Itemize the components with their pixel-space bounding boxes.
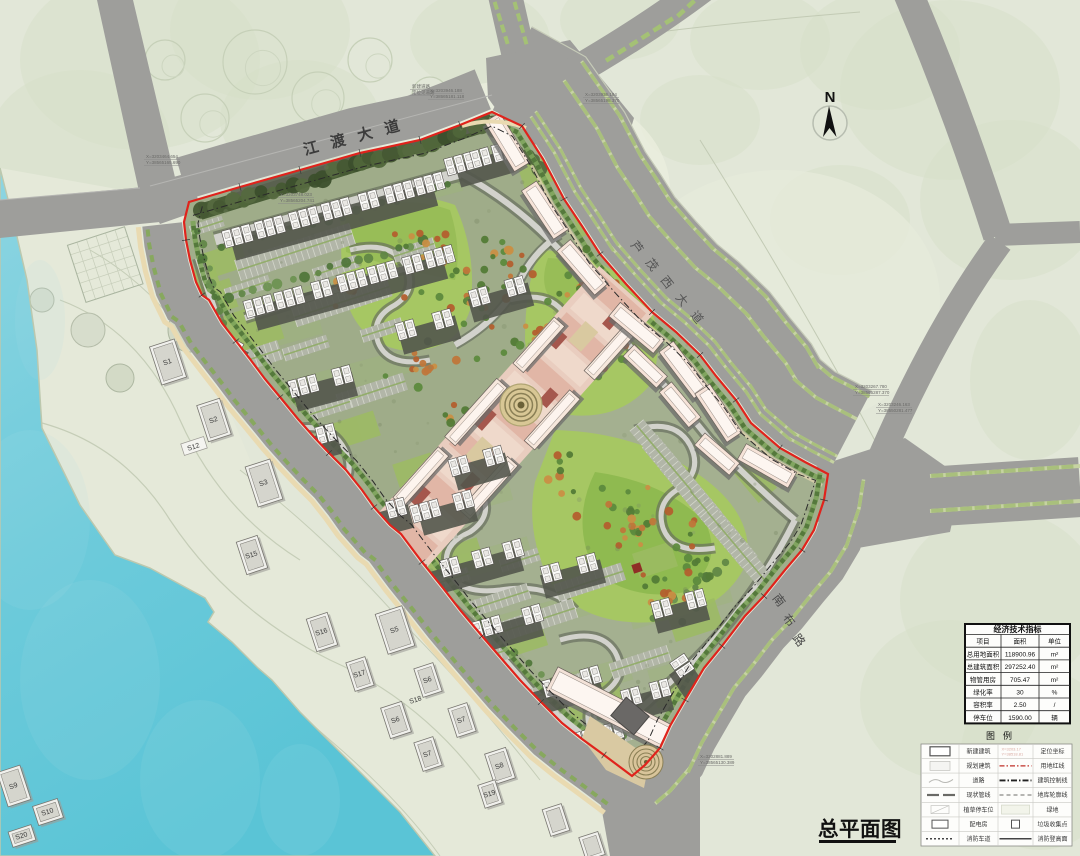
svg-text:m²: m² <box>1051 651 1059 658</box>
svg-text:30: 30 <box>1016 690 1024 697</box>
svg-text:%: % <box>1052 690 1058 697</box>
svg-text:N: N <box>825 89 836 106</box>
svg-text:绿地: 绿地 <box>1046 806 1058 814</box>
svg-text:X=3203748.023: X=3203748.023 <box>280 192 312 197</box>
svg-text:总用地面积: 总用地面积 <box>967 649 1000 658</box>
svg-text:例: 例 <box>1003 730 1012 741</box>
svg-text:消防车道: 消防车道 <box>966 835 990 843</box>
svg-text:297252.40: 297252.40 <box>1005 664 1036 671</box>
svg-text:道路: 道路 <box>972 777 984 785</box>
svg-text:Y=38518.81: Y=38518.81 <box>1002 751 1024 756</box>
svg-text:新建建筑: 新建建筑 <box>966 748 990 756</box>
svg-text:面积: 面积 <box>1014 637 1028 646</box>
svg-text:单位: 单位 <box>1048 637 1062 646</box>
svg-text:X=3202881.889: X=3202881.889 <box>700 754 732 759</box>
svg-text:用地红线: 用地红线 <box>1040 762 1064 770</box>
svg-text:图: 图 <box>986 731 995 741</box>
svg-text:物管用房: 物管用房 <box>970 675 996 684</box>
svg-text:X=3203464.654: X=3203464.654 <box>146 154 178 159</box>
svg-text:植草停车位: 植草停车位 <box>963 806 993 814</box>
svg-text:Y=38565130.389: Y=38565130.389 <box>700 760 735 765</box>
svg-text:X=3203946.188: X=3203946.188 <box>430 88 462 93</box>
svg-text:辆: 辆 <box>1051 713 1058 722</box>
svg-text:消防登高面: 消防登高面 <box>1037 835 1067 843</box>
svg-text:容积率: 容积率 <box>973 700 993 709</box>
svg-text:X=3203936.184: X=3203936.184 <box>585 92 617 97</box>
svg-text:地库轮廓线: 地库轮廓线 <box>1037 791 1067 799</box>
svg-text:现状管线: 现状管线 <box>966 791 990 799</box>
svg-text:绿化率: 绿化率 <box>973 688 993 697</box>
svg-text:垃圾收集点: 垃圾收集点 <box>1037 820 1067 828</box>
svg-text:定位坐标: 定位坐标 <box>1040 748 1064 756</box>
svg-text:m²: m² <box>1051 677 1059 684</box>
svg-text:总平面图: 总平面图 <box>818 817 902 841</box>
svg-text:X=3203246.163: X=3203246.163 <box>878 402 910 407</box>
svg-text:1590.00: 1590.00 <box>1008 715 1032 722</box>
svg-text:705.47: 705.47 <box>1010 677 1030 684</box>
svg-text:新建道路: 新建道路 <box>412 83 430 90</box>
svg-text:总建筑面积: 总建筑面积 <box>967 662 1000 671</box>
svg-text:经济技术指标: 经济技术指标 <box>994 624 1042 634</box>
svg-text:X=3203267.780: X=3203267.780 <box>855 384 887 389</box>
svg-text:118900.96: 118900.96 <box>1005 651 1036 658</box>
svg-text:Y=38565165.690: Y=38565165.690 <box>146 160 181 165</box>
svg-text:定位见道路: 定位见道路 <box>412 89 435 96</box>
svg-text:配电房: 配电房 <box>969 820 987 828</box>
svg-text:2.50: 2.50 <box>1014 702 1027 709</box>
svg-text:Y=38565181.118: Y=38565181.118 <box>430 94 465 99</box>
svg-text:项目: 项目 <box>977 638 990 646</box>
svg-text:m²: m² <box>1051 664 1059 671</box>
svg-text:Y=38565198.370: Y=38565198.370 <box>585 98 620 103</box>
svg-text:Y=38565204.741: Y=38565204.741 <box>280 198 315 203</box>
svg-text:停车位: 停车位 <box>973 713 993 722</box>
svg-text:/: / <box>1054 702 1056 709</box>
svg-text:规划建筑: 规划建筑 <box>966 762 990 770</box>
svg-text:建筑控制线: 建筑控制线 <box>1037 777 1067 785</box>
svg-text:Y=38565287.370: Y=38565287.370 <box>855 390 890 395</box>
svg-text:Y=38550281.477: Y=38550281.477 <box>878 408 913 413</box>
